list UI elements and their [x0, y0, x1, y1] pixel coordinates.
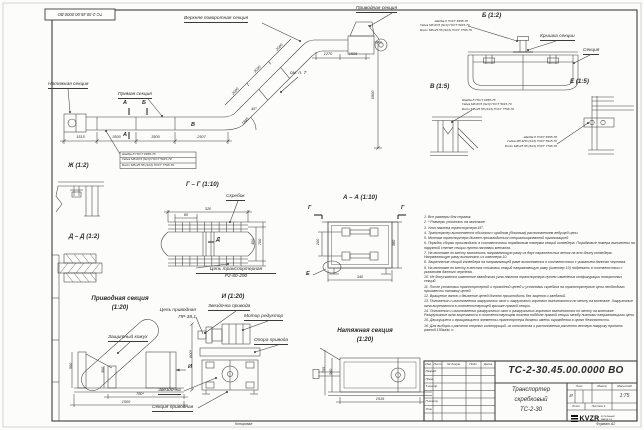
- dim-800: 800*: [190, 346, 194, 362]
- main-assembly-view: [60, 13, 392, 169]
- drive-section-title: Приводная секция: [70, 296, 170, 302]
- note-3: 3. Угол наклона транспортера 45°.: [424, 226, 635, 230]
- row-utv: Утв.: [426, 408, 433, 411]
- dim-400: 400: [252, 234, 256, 250]
- row-razrab: Разраб.: [426, 370, 437, 373]
- format-label: Формат А2: [596, 423, 615, 427]
- fastener-washer-spec: Шайба 8 ГОСТ 6958-78: [122, 153, 155, 156]
- dim-1515-tension: 1515: [372, 398, 388, 402]
- label-section: Секция: [583, 49, 599, 55]
- drawing-sheet: ТС-2-30.45.00.0000 ВО Верхняя поворотная…: [0, 0, 644, 430]
- fastener-bolt-spec-e: Болт М8х25.58 (S13) ГОСТ 7798-70: [497, 145, 557, 148]
- dim-80: 80: [178, 214, 194, 218]
- dim-755-tension: 755: [323, 362, 327, 378]
- dim-6900: 6900: [372, 86, 376, 102]
- dim-380: 380: [393, 235, 397, 251]
- view-i: [184, 311, 278, 408]
- label-drive-chain-model: ПР-38,1: [146, 316, 196, 321]
- dim-1505: 1505: [345, 53, 361, 57]
- dim-3500-b: 3500: [148, 136, 164, 140]
- fastener-bolt-spec: Болт М8х25.58 (S13) ГОСТ 7798-70: [122, 164, 174, 167]
- label-drive-section: Приводная секция: [356, 7, 397, 13]
- dim-700: 700: [259, 234, 263, 250]
- product-name-line2: скребковый: [495, 397, 567, 403]
- label-motor-reducer: Мотор редуктор: [244, 315, 283, 321]
- note-16: 16. Для выбора и расчета опорных констру…: [424, 324, 635, 333]
- section-dd-title: Д – Д (1:2): [60, 234, 108, 240]
- label-drive-chain: Цепь приводная: [146, 309, 196, 314]
- section-mark-b: Б: [142, 101, 146, 107]
- label-tension-section: Натяжная секция: [48, 83, 88, 89]
- detail-mark-v: В: [191, 123, 195, 129]
- note-13: 13. Положения и изготовления загрузочных…: [424, 299, 635, 308]
- lit-header: Лит.: [567, 385, 592, 388]
- dim-angle-45: 45°: [248, 108, 260, 112]
- label-drive-support: Опора привода: [254, 339, 288, 345]
- label-drive-section-item: Секция приводная: [152, 406, 193, 412]
- sheet-label: Лист: [567, 405, 585, 408]
- section-aa-title: А – А (1:10): [330, 195, 390, 201]
- fastener-nut-spec: Гайка М8-6Н3 (S13) ГОСТ 5915-70: [122, 158, 172, 161]
- detail-zh-title: Ж (1:2): [68, 163, 89, 169]
- detail-zh: [56, 182, 104, 216]
- col-doc: № докум.: [442, 363, 466, 366]
- note-5: 5. Монтаж транспортера должен производит…: [424, 236, 635, 240]
- product-name-line3: ТС-2-30: [495, 407, 567, 413]
- dim-2507: 2507: [194, 136, 210, 140]
- label-conveyor-chain-model: Р2-80-290: [196, 275, 276, 280]
- dim-3500-a: 3500: [109, 136, 125, 140]
- section-mark-g-right: Г: [401, 206, 404, 212]
- note-1: 1. Все размеры для справок.: [424, 215, 635, 219]
- dim-1515: 1515: [73, 136, 89, 140]
- section-mark-g-left: Г: [308, 206, 311, 212]
- col-sign: Подп.: [466, 363, 481, 366]
- label-straight-section: Прямая секция: [118, 93, 152, 99]
- reversed-designation-stamp: ТС-2-30.45.00.0000 ВО: [45, 9, 115, 20]
- kvzr-logo-icon: [571, 415, 578, 422]
- note-4: 4. Транспортер выполняется обычным с кра…: [424, 231, 635, 235]
- dim-780: 780*: [132, 393, 148, 397]
- label-see-note-7: см. п. 7: [290, 72, 306, 77]
- note-11: 11. После установки транспортерной и при…: [424, 285, 635, 294]
- detail-v: [430, 110, 482, 156]
- dim-1270: 1270: [320, 53, 336, 57]
- row-tkontr: Т.контр.: [426, 385, 438, 388]
- label-scraper: Скребок: [226, 195, 245, 201]
- label-drive-sprocket: Звездочка привода: [208, 305, 250, 311]
- detail-v-title: В (1:5): [430, 84, 449, 90]
- dim-300-drive: 300: [102, 362, 106, 378]
- fastener-nut-spec-v: Гайка М8-6Н3 (S13) ГОСТ 5915-70: [462, 103, 512, 106]
- dim-200: 200: [317, 234, 321, 250]
- sheets-label: Листов 1: [585, 405, 612, 408]
- detail-b-title: Б (1:2): [482, 13, 501, 19]
- fastener-nut-spec-b: Гайка М8-6Н3 (S13) ГОСТ 5915-70: [420, 24, 468, 27]
- note-14: 14. Положения и изготовления разгрузочны…: [424, 309, 635, 318]
- view-i-title: И (1:20): [210, 294, 256, 300]
- dim-1500: 1500: [118, 401, 134, 405]
- view-mark-i: И: [188, 365, 192, 371]
- product-name-line1: Транспортер: [495, 387, 567, 393]
- note-15: 15. Движущиеся и вращающиеся элементы тр…: [424, 318, 635, 322]
- fastener-bolt-spec-b: Болт М8х25.58 (S13) ГОСТ 7798-70: [420, 29, 468, 32]
- label-sprocket: Звездочка: [158, 389, 181, 395]
- row-prov: Пров.: [426, 378, 434, 381]
- col-izm: Изм.: [424, 363, 433, 366]
- kvzr-logo-subtext: КОТЕЛЬНЫЙЗАВОД РФ: [601, 416, 615, 421]
- copied-label: Копировал: [235, 423, 252, 427]
- section-mark-d: Д: [216, 238, 220, 244]
- note-9: 9. На монтаже по месту в местах стыковки…: [424, 266, 635, 275]
- detail-e: [557, 96, 634, 154]
- col-list: Лист: [433, 363, 442, 366]
- note-10: 10. Не допускается изменение заводского …: [424, 275, 635, 284]
- tension-section-scale: (1:20): [320, 337, 410, 343]
- scale-header: Масштаб: [612, 385, 637, 388]
- dim-320: 320: [200, 208, 216, 212]
- dim-340: 340: [352, 276, 368, 280]
- scale-value: 1:75: [612, 394, 637, 399]
- label-upper-turn-section: Верхняя поворотная секция: [184, 17, 248, 23]
- detail-mark-e: Е: [306, 272, 310, 278]
- kvzr-logo-subtext-line2: ЗАВОД РФ: [601, 419, 612, 421]
- label-protective-casing: Защитный кожух: [108, 336, 148, 342]
- note-7: 7. На монтаже по месту выполнить направл…: [424, 251, 635, 260]
- tension-section-title: Натяжная секция: [320, 328, 410, 334]
- section-dd: [58, 254, 102, 282]
- dim-560-tension: 560: [330, 364, 334, 380]
- drawing-designation: ТС-2-30.45.00.0000 ВО: [495, 366, 637, 376]
- label-section-cover: Крышка секции: [540, 35, 575, 41]
- fastener-bolt-spec-v: Болт М8х25.58 (S13) ГОСТ 7798-70: [462, 108, 514, 111]
- fastener-nut-spec-e: Гайка М8-6Н3 (S13) ГОСТ 5915-70: [497, 140, 557, 143]
- note-2: 2. * Размеры уточнить на монтаже.: [424, 220, 635, 224]
- note-6: 6. Порядок сборки производить в соответс…: [424, 241, 635, 250]
- detail-e-title: Е (1:5): [570, 79, 589, 85]
- note-12: 12. Вращение валов и движение цепей долж…: [424, 294, 635, 298]
- section-mark-a-top: А: [123, 101, 127, 107]
- technical-notes: 1. Все размеры для справок. 2. * Размеры…: [424, 215, 635, 333]
- section-aa: [313, 215, 406, 282]
- col-date: Дата: [481, 363, 495, 366]
- section-gg-title: Г – Г (1:10): [186, 182, 219, 188]
- lit-value: И: [567, 394, 575, 399]
- row-nkontr: Н.контр.: [426, 400, 439, 403]
- mass-header: Масса: [592, 385, 612, 388]
- dim-560-drive: 560: [70, 358, 74, 374]
- note-8: 8. Закрепление секций конвейера на напра…: [424, 260, 635, 264]
